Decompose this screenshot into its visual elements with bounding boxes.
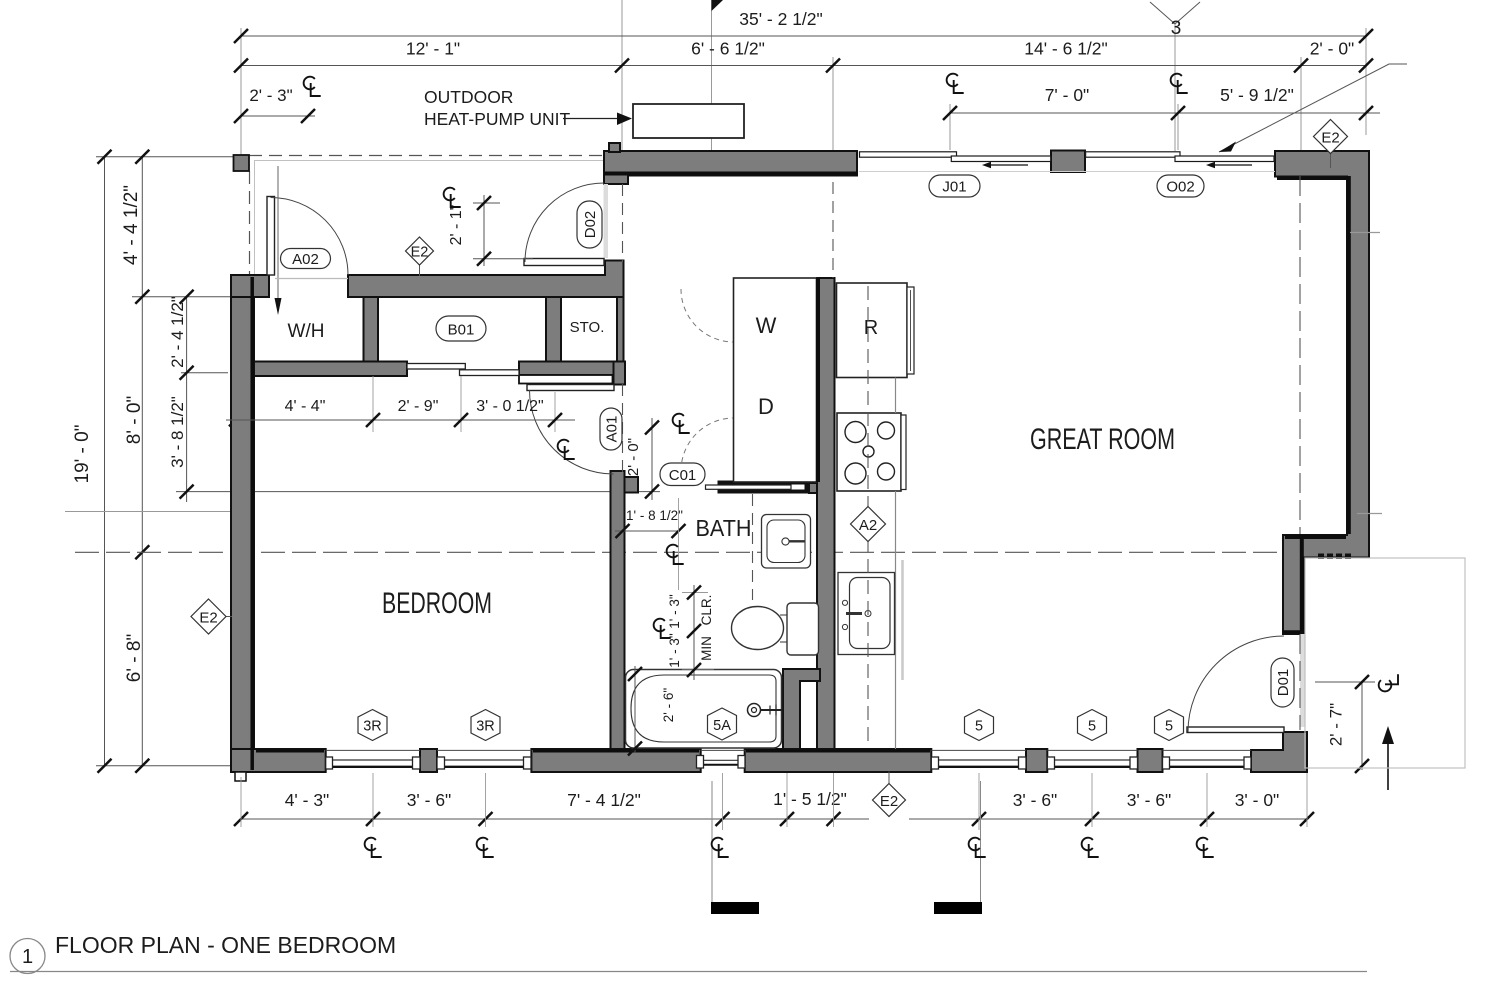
svg-text:2' - 4 1/2": 2' - 4 1/2": [168, 296, 187, 368]
svg-text:3' - 0 1/2": 3' - 0 1/2": [476, 398, 543, 415]
svg-text:6' - 6 1/2": 6' - 6 1/2": [691, 39, 765, 59]
svg-text:2' - 0": 2' - 0": [1310, 39, 1355, 59]
svg-text:W: W: [756, 313, 777, 338]
svg-text:35' - 2 1/2": 35' - 2 1/2": [739, 9, 823, 29]
svg-text:3R: 3R: [363, 719, 382, 735]
svg-text:7' - 0": 7' - 0": [1045, 85, 1090, 105]
svg-text:E2: E2: [880, 793, 898, 810]
svg-text:2' - 3": 2' - 3": [249, 86, 292, 105]
svg-text:7' - 4 1/2": 7' - 4 1/2": [567, 790, 641, 810]
svg-text:A2: A2: [859, 517, 877, 534]
svg-text:1' - 3": 1' - 3": [667, 594, 682, 629]
svg-text:5: 5: [975, 719, 983, 735]
svg-text:6' - 8": 6' - 8": [124, 634, 145, 682]
svg-text:D02: D02: [582, 211, 599, 239]
svg-text:A02: A02: [292, 251, 319, 268]
svg-text:1: 1: [22, 946, 33, 968]
svg-text:BEDROOM: BEDROOM: [382, 587, 492, 620]
svg-text:14' - 6 1/2": 14' - 6 1/2": [1024, 39, 1108, 59]
svg-text:D: D: [758, 394, 774, 419]
svg-text:A01: A01: [604, 416, 621, 443]
svg-text:E2: E2: [1321, 130, 1339, 147]
svg-text:3' - 6": 3' - 6": [1127, 790, 1172, 810]
svg-text:CLR.: CLR.: [699, 595, 714, 626]
svg-text:OUTDOOR: OUTDOOR: [424, 87, 513, 107]
svg-text:5: 5: [1088, 719, 1096, 735]
svg-text:2' - 0": 2' - 0": [625, 438, 642, 476]
svg-text:1' - 8 1/2": 1' - 8 1/2": [626, 508, 683, 523]
svg-text:4' - 3": 4' - 3": [285, 790, 330, 810]
svg-text:4' - 4 1/2": 4' - 4 1/2": [121, 185, 142, 265]
svg-text:5A: 5A: [713, 718, 731, 734]
svg-text:4' - 4": 4' - 4": [285, 398, 326, 415]
svg-text:J01: J01: [942, 179, 966, 196]
svg-text:MIN: MIN: [699, 636, 714, 661]
svg-text:HEAT-PUMP UNIT: HEAT-PUMP UNIT: [424, 109, 570, 129]
svg-text:W/H: W/H: [288, 321, 325, 342]
svg-text:5: 5: [1165, 719, 1173, 735]
svg-text:E2: E2: [411, 245, 429, 261]
svg-text:1' - 5 1/2": 1' - 5 1/2": [773, 789, 847, 809]
svg-text:R: R: [864, 317, 878, 339]
svg-text:5' - 9 1/2": 5' - 9 1/2": [1220, 85, 1294, 105]
svg-text:D01: D01: [1275, 669, 1292, 697]
svg-text:2' - 9": 2' - 9": [398, 398, 439, 415]
svg-text:C01: C01: [669, 467, 697, 484]
svg-text:2' - 7": 2' - 7": [1327, 703, 1346, 746]
svg-text:GREAT ROOM: GREAT ROOM: [1030, 423, 1175, 456]
svg-text:BATH: BATH: [696, 515, 752, 541]
svg-text:3: 3: [1171, 18, 1182, 39]
svg-text:B01: B01: [448, 322, 475, 339]
svg-text:E2: E2: [199, 610, 217, 627]
svg-text:2' - 1": 2' - 1": [448, 205, 465, 246]
svg-text:3' - 6": 3' - 6": [1013, 790, 1058, 810]
svg-text:12' - 1": 12' - 1": [406, 39, 460, 59]
svg-text:8' - 0": 8' - 0": [124, 396, 145, 444]
svg-text:FLOOR PLAN - ONE BEDROOM: FLOOR PLAN - ONE BEDROOM: [55, 932, 396, 958]
svg-text:3' - 6": 3' - 6": [407, 790, 452, 810]
svg-text:3R: 3R: [476, 719, 495, 735]
svg-text:2' - 6": 2' - 6": [661, 688, 676, 723]
svg-text:3' - 8 1/2": 3' - 8 1/2": [168, 396, 187, 468]
svg-text:STO.: STO.: [570, 319, 605, 336]
svg-text:O02: O02: [1166, 179, 1194, 196]
svg-text:3' - 0": 3' - 0": [1235, 790, 1280, 810]
svg-text:19' - 0": 19' - 0": [72, 425, 93, 484]
